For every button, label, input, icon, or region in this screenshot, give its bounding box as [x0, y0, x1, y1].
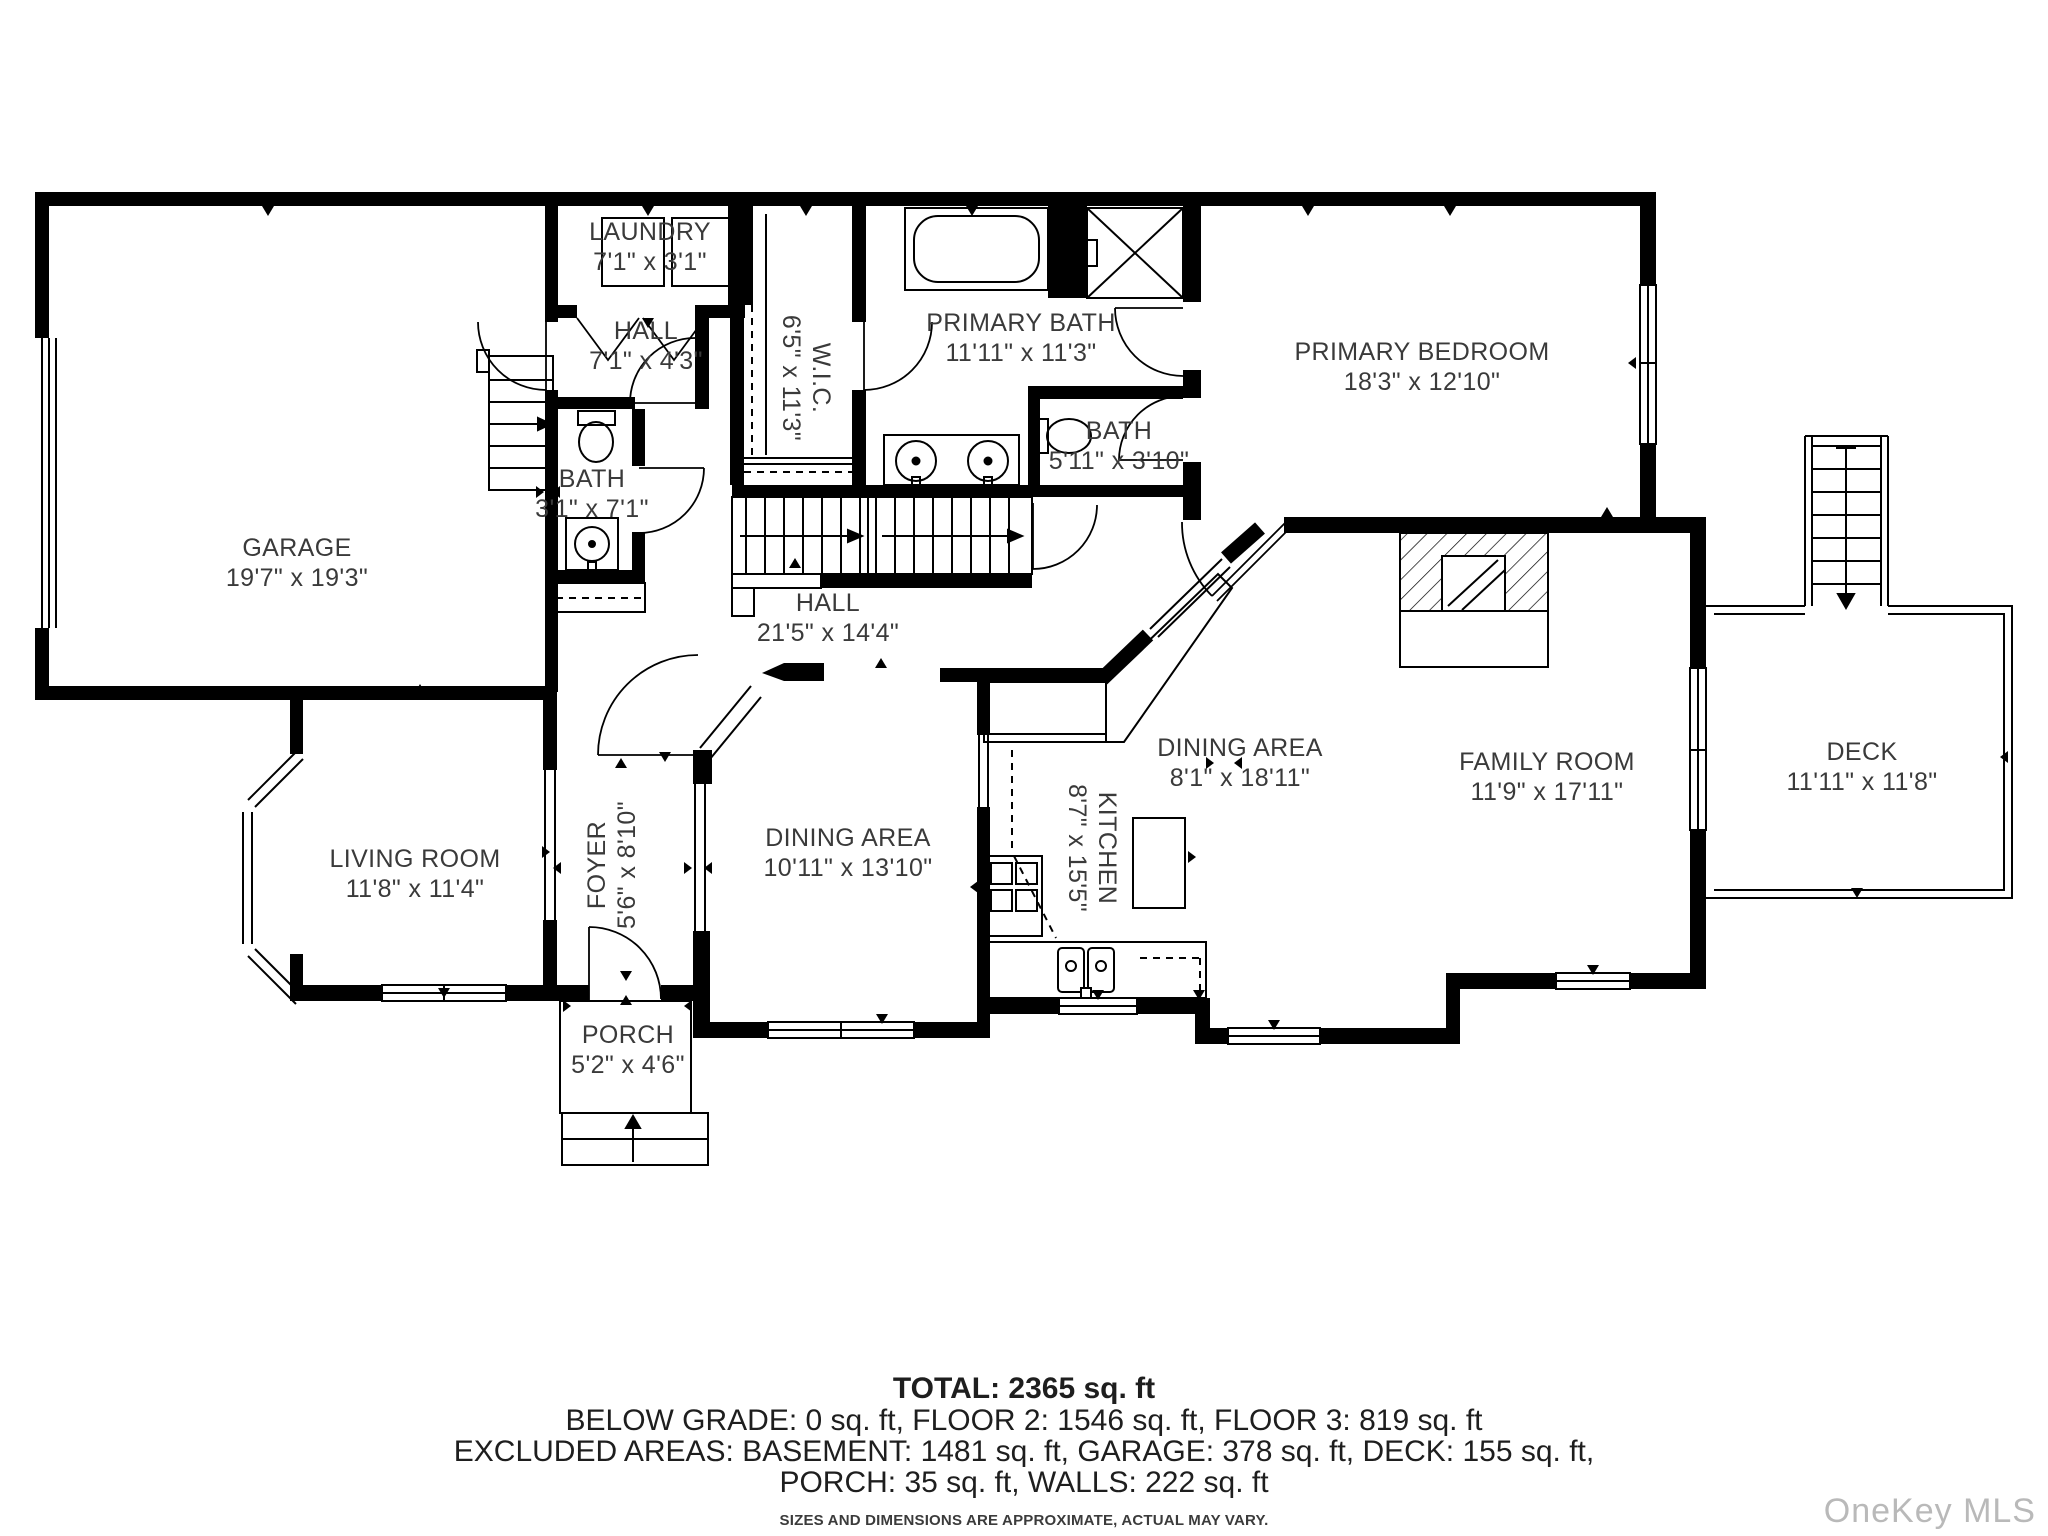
room-label-family-room: FAMILY ROOM 11'9" x 17'11" — [1459, 747, 1635, 807]
room-dims: 8'1" x 18'11" — [1157, 763, 1323, 793]
room-dims: 19'7" x 19'3" — [226, 563, 368, 593]
room-dims: 10'11" x 13'10" — [763, 853, 932, 883]
room-dims: 5'11" x 3'10" — [1049, 446, 1189, 476]
summary-line-3: EXCLUDED AREAS: BASEMENT: 1481 sq. ft, G… — [0, 1436, 2048, 1467]
room-name: PORCH — [571, 1020, 685, 1050]
room-dims: 3'1" x 7'1" — [535, 494, 649, 524]
room-label-dining-area-2: DINING AREA 8'1" x 18'11" — [1157, 733, 1323, 793]
room-label-porch: PORCH 5'2" x 4'6" — [571, 1020, 685, 1080]
floor-plan-page: GARAGE 19'7" x 19'3" LAUNDRY 7'1" x 3'1"… — [0, 0, 2048, 1536]
room-dims: 11'11" x 11'3" — [926, 338, 1116, 368]
room-dims: 5'2" x 4'6" — [571, 1050, 685, 1080]
room-label-hall-upper: HALL 7'1" x 4'3" — [589, 316, 703, 376]
floor-plan-drawing — [0, 0, 2048, 1536]
fireplace — [1400, 533, 1548, 667]
room-dims: 11'8" x 11'4" — [329, 874, 500, 904]
room-label-wic: W.I.C. 6'5" x 11'3" — [776, 315, 836, 441]
room-name: PRIMARY BATH — [926, 308, 1116, 338]
summary-total: TOTAL: 2365 sq. ft — [0, 1373, 2048, 1405]
room-name: HALL — [589, 316, 703, 346]
wall-markers — [262, 206, 2008, 1030]
room-name: FOYER — [582, 801, 612, 929]
room-name: DECK — [1786, 737, 1937, 767]
room-label-primary-bath: PRIMARY BATH 11'11" x 11'3" — [926, 308, 1116, 368]
room-label-deck: DECK 11'11" x 11'8" — [1786, 737, 1937, 797]
room-label-bath-1: BATH 3'1" x 7'1" — [535, 464, 649, 524]
room-name: LAUNDRY — [589, 217, 711, 247]
room-dims: 21'5" x 14'4" — [757, 618, 899, 648]
summary-line-2: BELOW GRADE: 0 sq. ft, FLOOR 2: 1546 sq.… — [0, 1405, 2048, 1436]
room-name: KITCHEN — [1092, 784, 1122, 912]
room-label-dining-area-1: DINING AREA 10'11" x 13'10" — [763, 823, 932, 883]
room-name: GARAGE — [226, 533, 368, 563]
room-name: W.I.C. — [806, 315, 836, 441]
summary-line-4: PORCH: 35 sq. ft, WALLS: 222 sq. ft — [0, 1467, 2048, 1498]
room-name: DINING AREA — [1157, 733, 1323, 763]
room-name: LIVING ROOM — [329, 844, 500, 874]
room-name: FAMILY ROOM — [1459, 747, 1635, 777]
room-dims: 8'7" x 15'5" — [1062, 784, 1092, 912]
room-label-kitchen: KITCHEN 8'7" x 15'5" — [1062, 784, 1122, 912]
room-name: PRIMARY BEDROOM — [1294, 337, 1549, 367]
room-dims: 6'5" x 11'3" — [776, 315, 806, 441]
area-summary: TOTAL: 2365 sq. ft BELOW GRADE: 0 sq. ft… — [0, 1373, 2048, 1529]
room-label-garage: GARAGE 19'7" x 19'3" — [226, 533, 368, 593]
room-label-living-room: LIVING ROOM 11'8" x 11'4" — [329, 844, 500, 904]
room-name: HALL — [757, 588, 899, 618]
windows — [243, 285, 1706, 1044]
deck-stairs — [1805, 436, 1888, 608]
room-label-bath-2: BATH 5'11" x 3'10" — [1049, 416, 1189, 476]
room-name: DINING AREA — [763, 823, 932, 853]
room-label-foyer: FOYER 5'6" x 8'10" — [582, 801, 642, 929]
room-dims: 11'9" x 17'11" — [1459, 777, 1635, 807]
summary-disclaimer: SIZES AND DIMENSIONS ARE APPROXIMATE, AC… — [0, 1512, 2048, 1529]
room-dims: 11'11" x 11'8" — [1786, 767, 1937, 797]
room-dims: 5'6" x 8'10" — [612, 801, 642, 929]
room-name: BATH — [1049, 416, 1189, 446]
room-dims: 7'1" x 4'3" — [589, 346, 703, 376]
room-dims: 7'1" x 3'1" — [589, 247, 711, 277]
room-label-hall-main: HALL 21'5" x 14'4" — [757, 588, 899, 648]
onekey-mls-watermark: OneKey MLS — [1824, 1492, 2036, 1531]
room-name: BATH — [535, 464, 649, 494]
room-label-primary-bedroom: PRIMARY BEDROOM 18'3" x 12'10" — [1294, 337, 1549, 397]
room-label-laundry: LAUNDRY 7'1" x 3'1" — [589, 217, 711, 277]
room-dims: 18'3" x 12'10" — [1294, 367, 1549, 397]
